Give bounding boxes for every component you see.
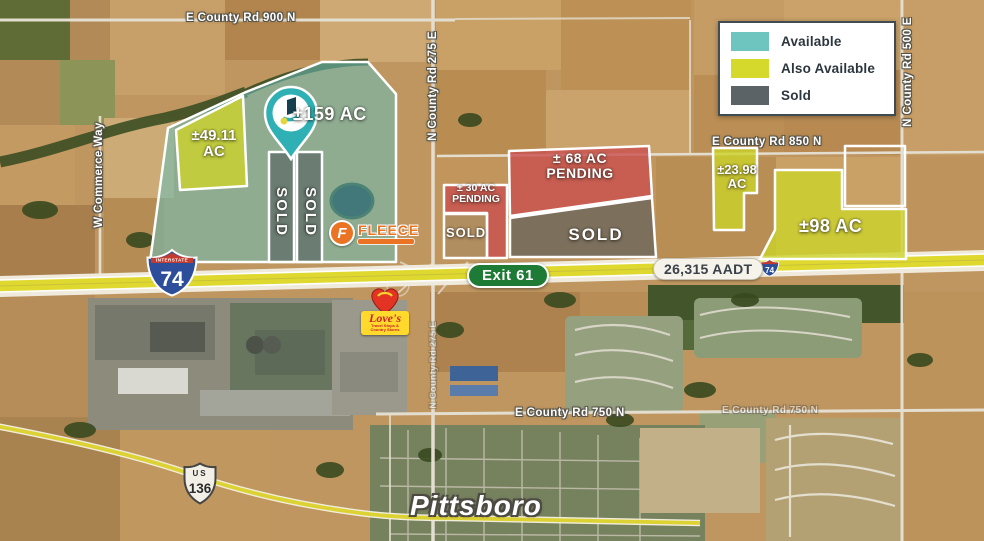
parcel-label-49ac: ±49.11 AC bbox=[183, 128, 245, 160]
parcel-label-2398ac: ±23.98 AC bbox=[710, 163, 764, 191]
parcel-label-68ac-line1: ± 68 AC bbox=[528, 151, 632, 166]
legend-row-available: Available bbox=[731, 32, 883, 51]
us-route-number: 136 bbox=[189, 481, 212, 496]
road-label-750n-east: E County Rd 750 N bbox=[722, 405, 818, 416]
road-label-275e-south: N County Rd 275 E bbox=[428, 317, 438, 413]
exit-61-sign: Exit 61 bbox=[467, 263, 549, 288]
legend-label-sold: Sold bbox=[781, 88, 811, 103]
town-label: Pittsboro bbox=[410, 490, 542, 522]
parcel-label-49ac-line2: AC bbox=[183, 144, 245, 160]
loves-tagline: Travel Stops & Country Stores bbox=[364, 324, 406, 333]
road-label-750n: E County Rd 750 N bbox=[515, 407, 625, 419]
parcel-label-2398ac-line1: ±23.98 bbox=[710, 163, 764, 177]
parcel-label-30ac: ± 30 AC PENDING bbox=[444, 183, 508, 206]
parcel-label-sold-small: SOLD bbox=[446, 226, 486, 240]
road-label-900n: E County Rd 900 N bbox=[186, 12, 296, 24]
legend-label-available: Available bbox=[781, 34, 842, 49]
map-canvas[interactable]: INTERSTATE 74 74 US 136 E County Rd 900 … bbox=[0, 0, 984, 541]
fleece-wordmark: FLEECE bbox=[358, 222, 419, 238]
us-route-label: US bbox=[192, 469, 207, 478]
interstate-number: 74 bbox=[160, 268, 184, 291]
fleece-tagline-bar bbox=[358, 239, 414, 244]
legend: Available Also Available Sold bbox=[718, 21, 896, 116]
legend-row-also-available: Also Available bbox=[731, 59, 883, 78]
parcel-label-68ac-line2: PENDING bbox=[528, 166, 632, 181]
road-label-commerce-way: W Commerce Way bbox=[93, 119, 105, 231]
interstate-number-small: 74 bbox=[765, 266, 775, 275]
parcel-label-30ac-line2: PENDING bbox=[444, 194, 508, 205]
fleece-f-icon: F bbox=[329, 220, 355, 246]
legend-swatch-available bbox=[731, 32, 769, 51]
parcel-label-sold-strip-1: SOLD bbox=[273, 162, 289, 262]
legend-label-also-available: Also Available bbox=[781, 61, 875, 76]
loves-sign-box: Love's Travel Stops & Country Stores bbox=[361, 311, 409, 335]
legend-row-sold: Sold bbox=[731, 86, 883, 105]
loves-logo: Love's Travel Stops & Country Stores bbox=[361, 287, 409, 335]
aadt-badge: 26,315 AADT bbox=[653, 258, 763, 280]
parcel-label-sold-strip-2: SOLD bbox=[302, 162, 318, 262]
fleece-logo: F FLEECE bbox=[329, 220, 419, 246]
road-label-275e: N County Rd 275 E bbox=[427, 30, 439, 142]
parcel-label-68ac: ± 68 AC PENDING bbox=[528, 151, 632, 181]
parcel-label-49ac-line1: ±49.11 bbox=[183, 128, 245, 144]
legend-swatch-sold bbox=[731, 86, 769, 105]
parcel-label-2398ac-line2: AC bbox=[710, 177, 764, 191]
interstate-label: INTERSTATE bbox=[156, 258, 188, 263]
parcel-label-sold-large: SOLD bbox=[563, 226, 629, 244]
parcel-label-159ac: ±159 AC bbox=[293, 105, 367, 124]
legend-swatch-also-available bbox=[731, 59, 769, 78]
road-label-850n: E County Rd 850 N bbox=[712, 136, 822, 148]
road-label-500e: N County Rd 500 E bbox=[902, 16, 914, 128]
parcel-label-98ac: ±98 AC bbox=[799, 217, 862, 236]
